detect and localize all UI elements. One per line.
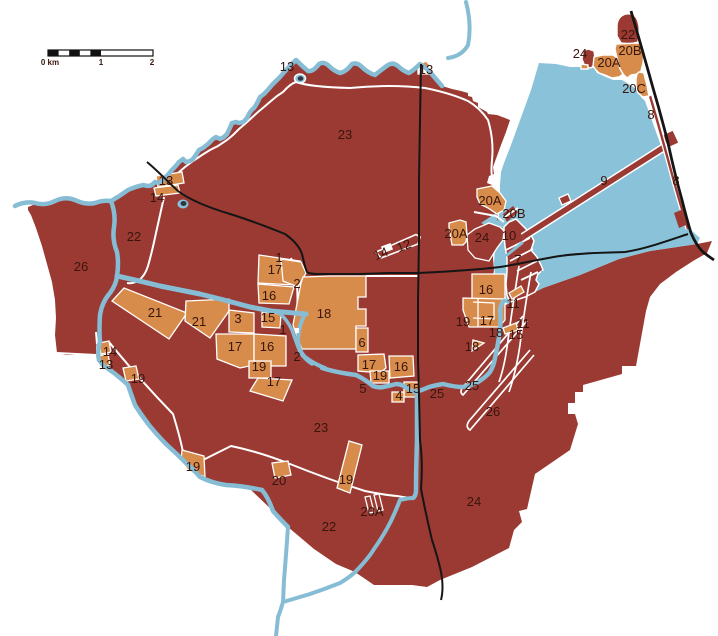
svg-text:21: 21 (192, 314, 206, 329)
svg-text:20A: 20A (478, 193, 501, 208)
svg-text:24: 24 (573, 46, 587, 61)
svg-text:13: 13 (159, 173, 173, 188)
svg-text:24: 24 (475, 230, 489, 245)
svg-text:4: 4 (395, 388, 402, 403)
svg-text:20A: 20A (444, 226, 467, 241)
svg-text:11: 11 (516, 316, 530, 331)
svg-text:23: 23 (338, 127, 352, 142)
svg-text:1: 1 (279, 322, 286, 337)
svg-text:6: 6 (358, 335, 365, 350)
svg-text:25: 25 (430, 386, 444, 401)
svg-text:16: 16 (479, 282, 493, 297)
svg-text:16: 16 (260, 339, 274, 354)
svg-text:26: 26 (74, 259, 88, 274)
svg-text:8: 8 (672, 173, 679, 188)
svg-text:9: 9 (600, 173, 607, 188)
svg-text:2: 2 (150, 58, 155, 67)
svg-text:20: 20 (272, 473, 286, 488)
svg-text:20B: 20B (618, 43, 641, 58)
svg-text:19: 19 (186, 459, 200, 474)
svg-text:13: 13 (99, 357, 113, 372)
svg-text:20B: 20B (502, 206, 525, 221)
svg-text:0 km: 0 km (41, 58, 59, 67)
svg-text:11: 11 (506, 296, 520, 311)
svg-text:18: 18 (317, 306, 331, 321)
svg-text:26: 26 (486, 404, 500, 419)
svg-text:17: 17 (228, 339, 242, 354)
svg-text:19: 19 (252, 359, 266, 374)
svg-text:18: 18 (489, 325, 503, 340)
svg-text:22: 22 (127, 229, 141, 244)
svg-text:19: 19 (131, 371, 145, 386)
svg-text:15: 15 (406, 381, 420, 396)
svg-text:7: 7 (514, 252, 521, 267)
svg-text:19: 19 (339, 472, 353, 487)
svg-text:14: 14 (150, 190, 164, 205)
svg-text:23: 23 (314, 420, 328, 435)
svg-text:5: 5 (359, 381, 366, 396)
svg-text:3: 3 (234, 311, 241, 326)
svg-text:1: 1 (275, 250, 282, 265)
svg-text:15: 15 (261, 310, 275, 325)
svg-text:8: 8 (647, 107, 654, 122)
svg-text:17: 17 (267, 374, 281, 389)
svg-text:10: 10 (502, 228, 516, 243)
svg-text:21: 21 (148, 305, 162, 320)
svg-text:22: 22 (322, 519, 336, 534)
svg-text:22: 22 (621, 27, 635, 42)
svg-text:19: 19 (373, 368, 387, 383)
svg-text:20A: 20A (360, 504, 383, 519)
svg-text:24: 24 (467, 494, 481, 509)
svg-text:16: 16 (262, 288, 276, 303)
svg-text:13: 13 (419, 62, 433, 77)
svg-text:2: 2 (293, 349, 300, 364)
svg-text:19: 19 (456, 314, 470, 329)
svg-text:20C: 20C (622, 81, 646, 96)
svg-text:13: 13 (280, 59, 294, 74)
svg-text:18: 18 (465, 339, 479, 354)
svg-text:20A: 20A (597, 55, 620, 70)
svg-text:16: 16 (394, 359, 408, 374)
svg-text:25: 25 (465, 378, 479, 393)
svg-text:2: 2 (293, 276, 300, 291)
svg-text:1: 1 (99, 58, 104, 67)
